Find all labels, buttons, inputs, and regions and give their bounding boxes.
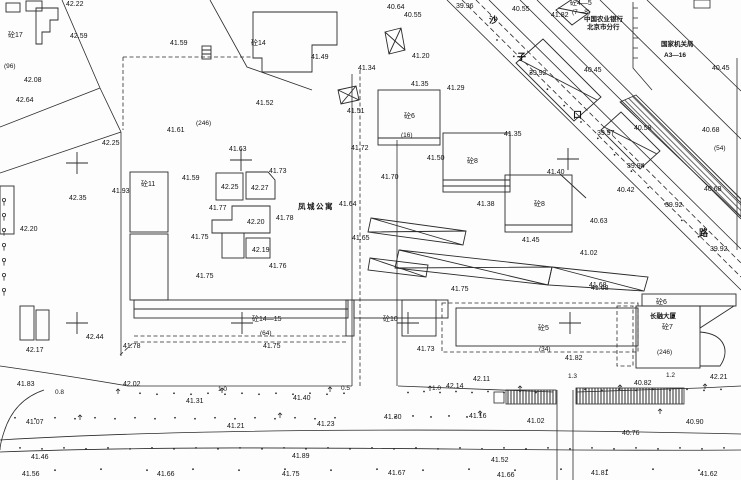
pole-symbols — [2, 198, 5, 295]
building-row-10 — [354, 300, 448, 318]
building-changrong-tower — [636, 306, 700, 368]
building-row-5 — [456, 308, 638, 346]
survey-cross — [397, 312, 419, 334]
stairs-band — [620, 95, 741, 217]
bottom-roads — [0, 366, 741, 480]
site-plan-linework — [0, 0, 741, 480]
survey-cross — [66, 312, 88, 334]
building-tower-11-upper — [130, 172, 168, 232]
buildings — [0, 0, 736, 368]
survey-cross — [557, 148, 579, 170]
metro-entrance-west — [506, 390, 556, 404]
survey-crosses — [66, 148, 581, 334]
survey-cross — [66, 152, 88, 174]
legend-box — [26, 1, 42, 11]
road-edges-topleft — [0, 0, 312, 356]
building-tower-11-lower — [130, 234, 168, 300]
map-canvas: 42.22砼1742.5941.59(96)42.0842.64(246)41.… — [0, 0, 741, 480]
compound-fences — [120, 57, 638, 386]
center-road — [352, 74, 397, 386]
metro-entrance-east — [576, 388, 684, 404]
survey-cross — [231, 312, 253, 334]
building-8a — [443, 133, 510, 192]
building-north-block — [253, 12, 337, 72]
south-road — [557, 390, 573, 480]
survey-cross — [559, 312, 581, 334]
building-8b — [505, 175, 572, 232]
building-6 — [378, 90, 440, 145]
boulevard — [447, 0, 741, 290]
legend-box — [6, 3, 20, 12]
survey-cross — [230, 149, 252, 171]
